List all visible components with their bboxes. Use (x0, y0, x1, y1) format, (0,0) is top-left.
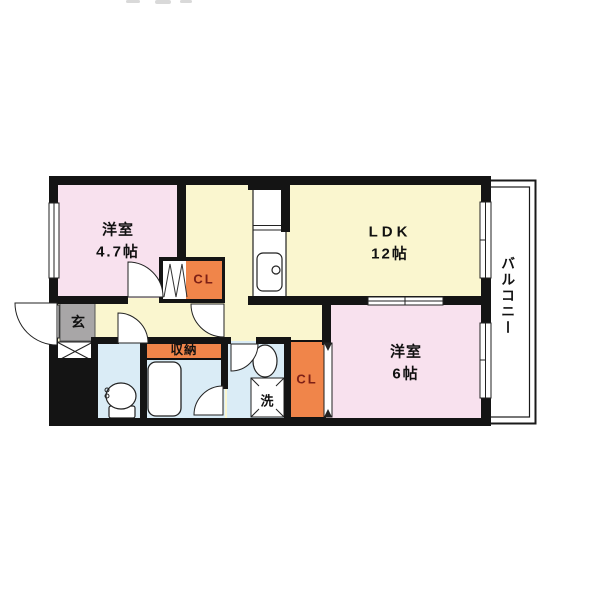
closet-small-label: CL (193, 271, 214, 290)
room-size: 4.7帖 (96, 241, 140, 263)
room-label-western-large: 洋室 6帖 (390, 341, 422, 385)
room-size: 12帖 (369, 243, 412, 265)
room-name: 洋室 (390, 341, 422, 363)
floorplan-image: 洋室 4.7帖 LDK 12帖 洋室 6帖 バルコニー 玄 収納 CL CL 洗 (0, 0, 600, 600)
closet-large-door (324, 343, 332, 417)
balcony-label: バルコニー (498, 256, 518, 336)
room-name: LDK (369, 221, 412, 243)
room-size: 6帖 (390, 363, 422, 385)
toilet-icon (105, 383, 136, 418)
laundry-label: 洗 (260, 393, 273, 412)
entry-door-swing (15, 303, 57, 345)
room-label-western-small: 洋室 4.7帖 (96, 219, 140, 263)
closet-large-label: CL (296, 371, 317, 390)
bathtub-icon (148, 362, 181, 416)
storage-label: 収納 (170, 341, 197, 359)
room-label-ldk: LDK 12帖 (369, 221, 412, 265)
entrance-label: 玄 (71, 312, 85, 332)
room-name: 洋室 (96, 219, 140, 241)
faucet-icon (272, 266, 280, 274)
